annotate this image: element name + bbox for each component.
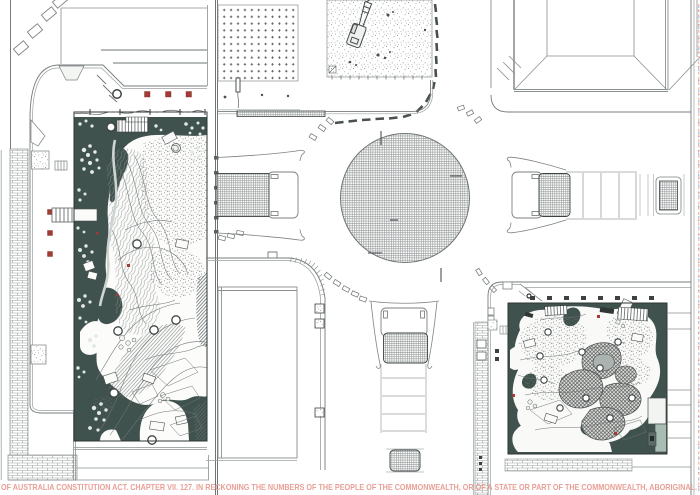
svg-text:OF AUSTRALIA CONSTITUTION ACT.: OF AUSTRALIA CONSTITUTION ACT. CHAPTER V… xyxy=(1,483,697,492)
